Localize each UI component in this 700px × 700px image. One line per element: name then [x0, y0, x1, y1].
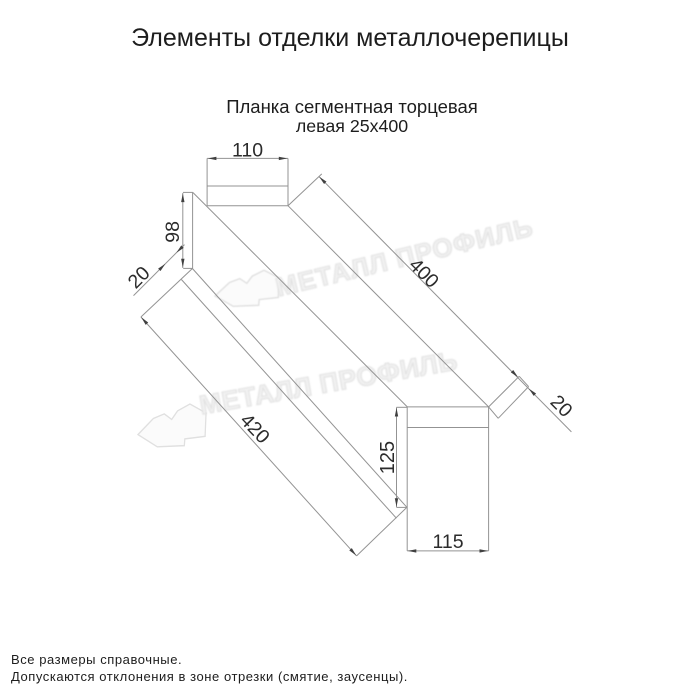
svg-text:125: 125: [377, 441, 399, 474]
svg-text:420: 420: [235, 409, 273, 448]
svg-text:115: 115: [432, 531, 463, 553]
svg-text:98: 98: [162, 221, 184, 243]
svg-text:МЕТАЛЛ ПРОФИЛЬ: МЕТАЛЛ ПРОФИЛЬ: [197, 346, 460, 421]
svg-text:20: 20: [546, 391, 577, 422]
svg-text:МЕТАЛЛ ПРОФИЛЬ: МЕТАЛЛ ПРОФИЛЬ: [273, 212, 536, 303]
svg-text:20: 20: [124, 262, 155, 293]
svg-text:110: 110: [232, 139, 263, 161]
